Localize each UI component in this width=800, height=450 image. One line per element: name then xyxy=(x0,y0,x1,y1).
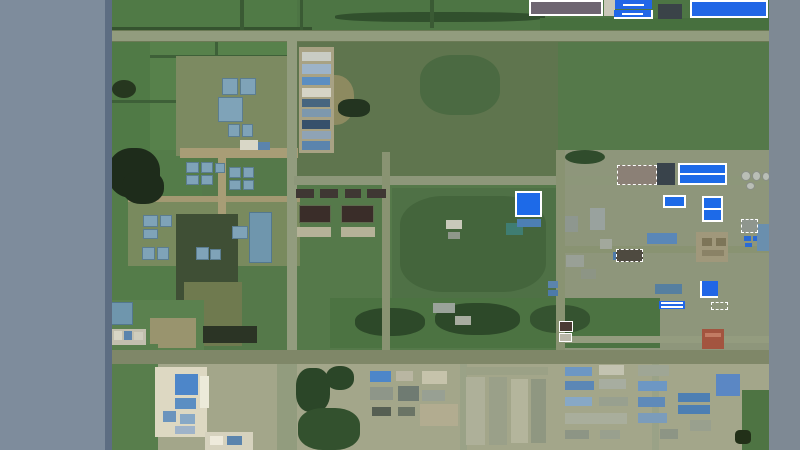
left-panel-edge xyxy=(105,0,112,450)
right-gutter xyxy=(769,0,800,450)
satellite-map-canvas[interactable] xyxy=(0,0,800,450)
left-panel xyxy=(0,0,105,450)
app-window xyxy=(0,0,800,450)
image-noise-overlay xyxy=(112,0,769,450)
